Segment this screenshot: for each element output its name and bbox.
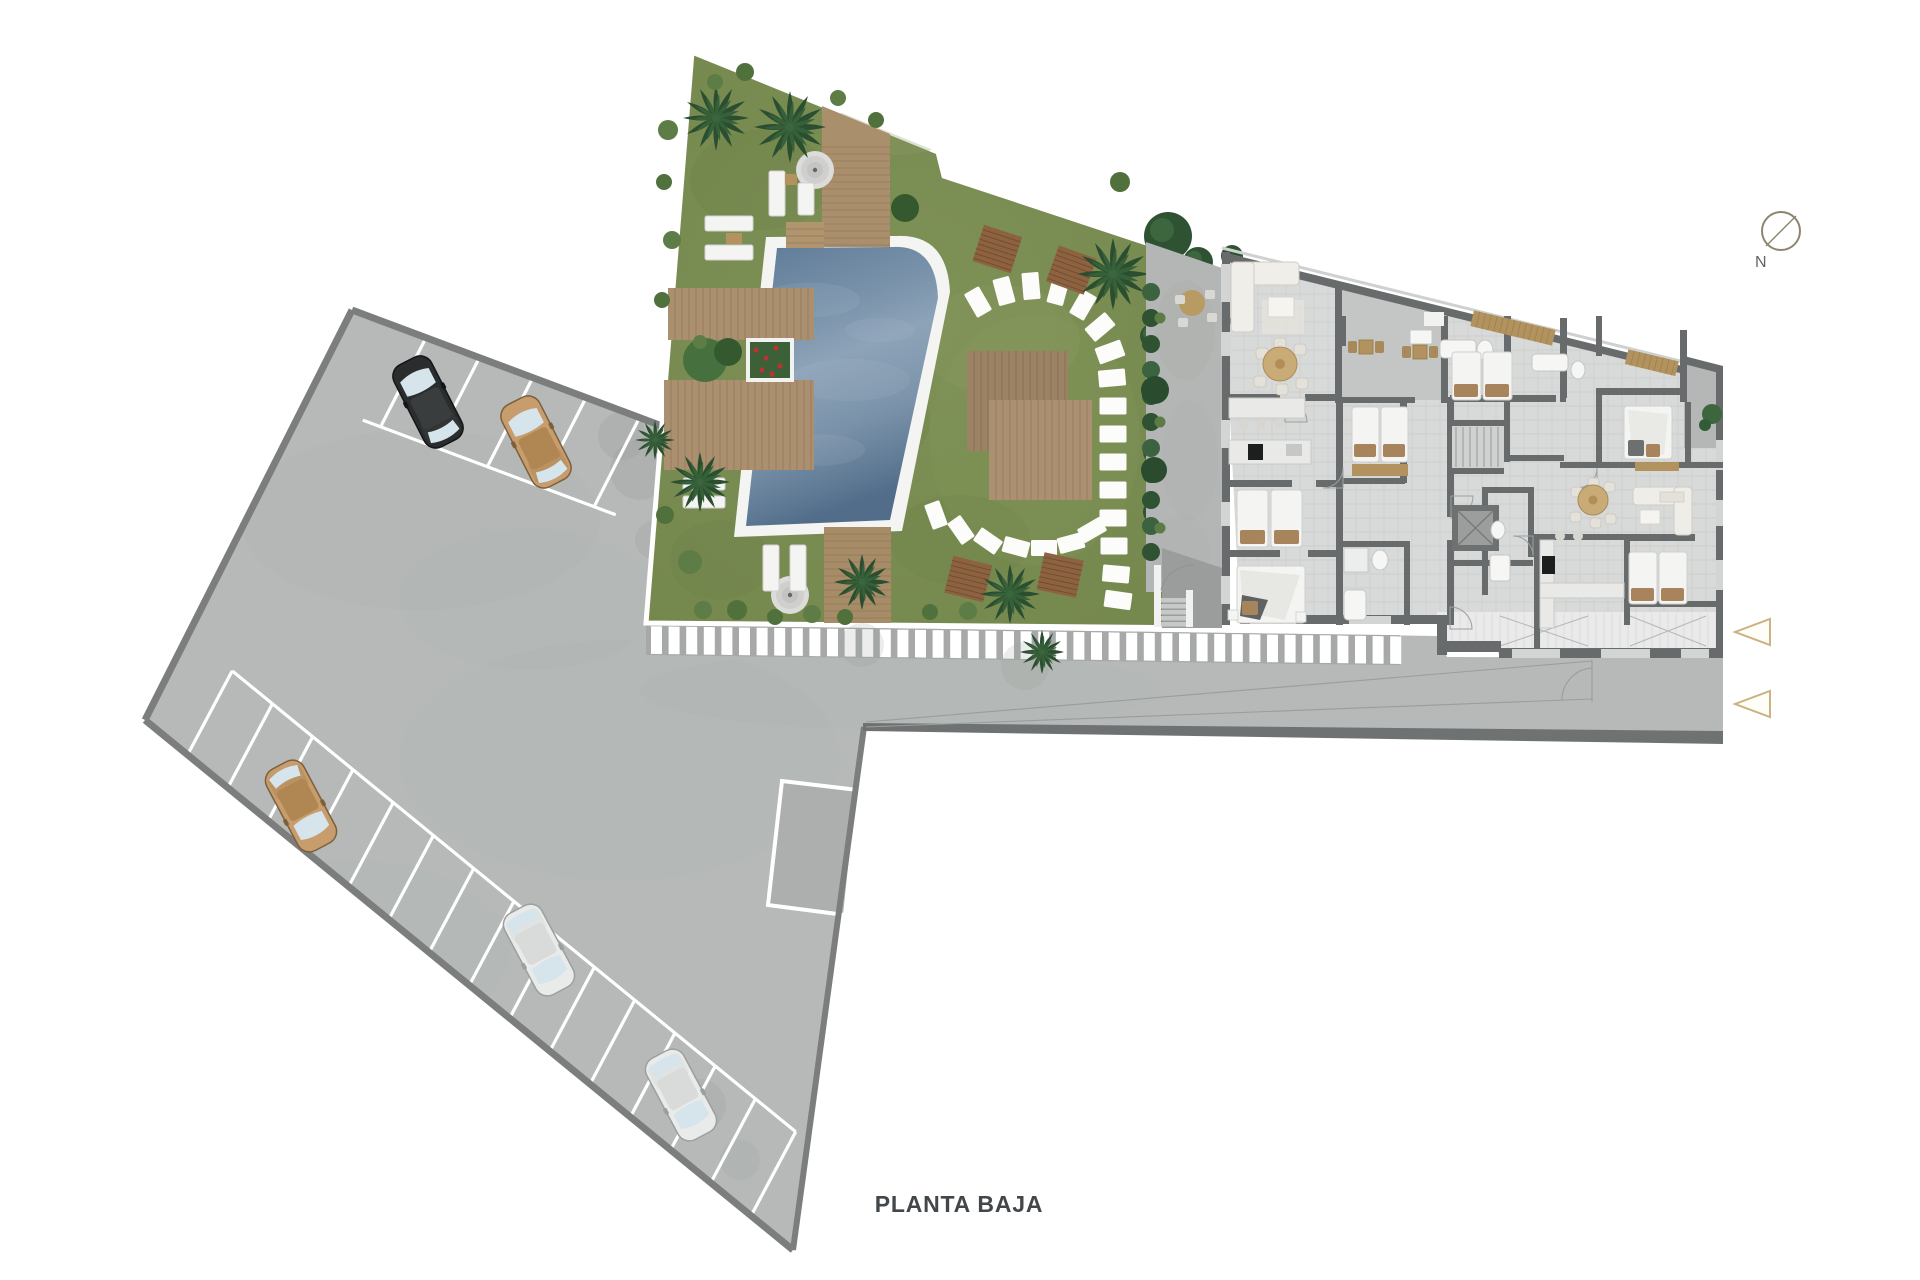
svg-text:N: N bbox=[1755, 254, 1767, 271]
svg-text:PLANTA BAJA: PLANTA BAJA bbox=[875, 1191, 1044, 1217]
